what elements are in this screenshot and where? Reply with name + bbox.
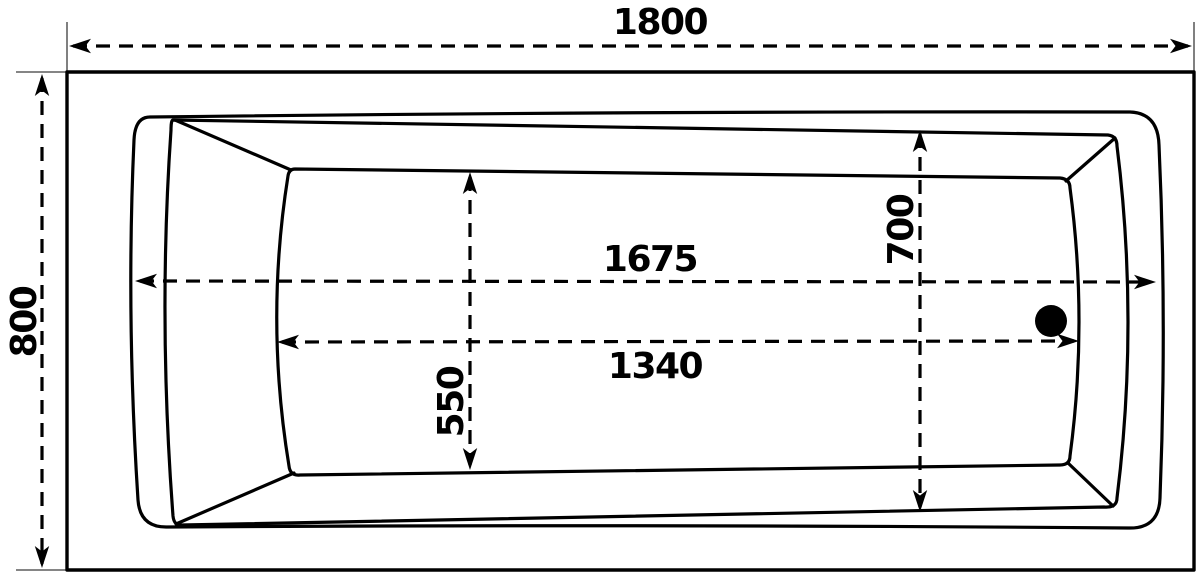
dim-label-overall-length: 1800 [613, 2, 708, 43]
dimension-arrowheads [35, 39, 1192, 568]
dim-label-basin-floor-length: 1340 [608, 346, 703, 387]
corner-chamfer-top-right [1066, 138, 1115, 181]
corner-chamfer-bottom-right [1068, 463, 1113, 506]
rim-inner-edge [165, 120, 1128, 525]
dim-label-basin-floor-width: 550 [431, 366, 472, 437]
dimension-lines [42, 46, 1188, 564]
dim-arrow-1800-right [1170, 39, 1192, 53]
basin-outline [277, 169, 1079, 475]
corner-chamfer-top-left [175, 120, 291, 170]
dim-label-overall-width: 800 [4, 286, 45, 357]
dim-line-rim-opening-length [140, 281, 1150, 282]
dim-arrow-800-top [35, 74, 49, 96]
dim-label-rim-opening-width: 700 [881, 194, 922, 265]
corner-chamfer-bottom-left [176, 473, 294, 524]
drain-hole [1035, 305, 1067, 337]
drawing-canvas: 1800 800 1675 1340 700 550 [0, 0, 1200, 576]
dim-arrow-1800-left [69, 39, 91, 53]
extension-lines [16, 22, 1194, 570]
dim-arrow-550-bottom [463, 448, 477, 470]
dim-arrow-700-bottom [913, 490, 927, 512]
tub-outlines [67, 72, 1194, 570]
dim-line-basin-floor-length [282, 341, 1074, 342]
dimension-labels: 1800 800 1675 1340 700 550 [4, 2, 922, 437]
dim-arrow-1340-right [1057, 334, 1079, 348]
dim-label-rim-opening-length: 1675 [603, 239, 697, 280]
bathtub-dimension-drawing: 1800 800 1675 1340 700 550 [0, 0, 1200, 576]
